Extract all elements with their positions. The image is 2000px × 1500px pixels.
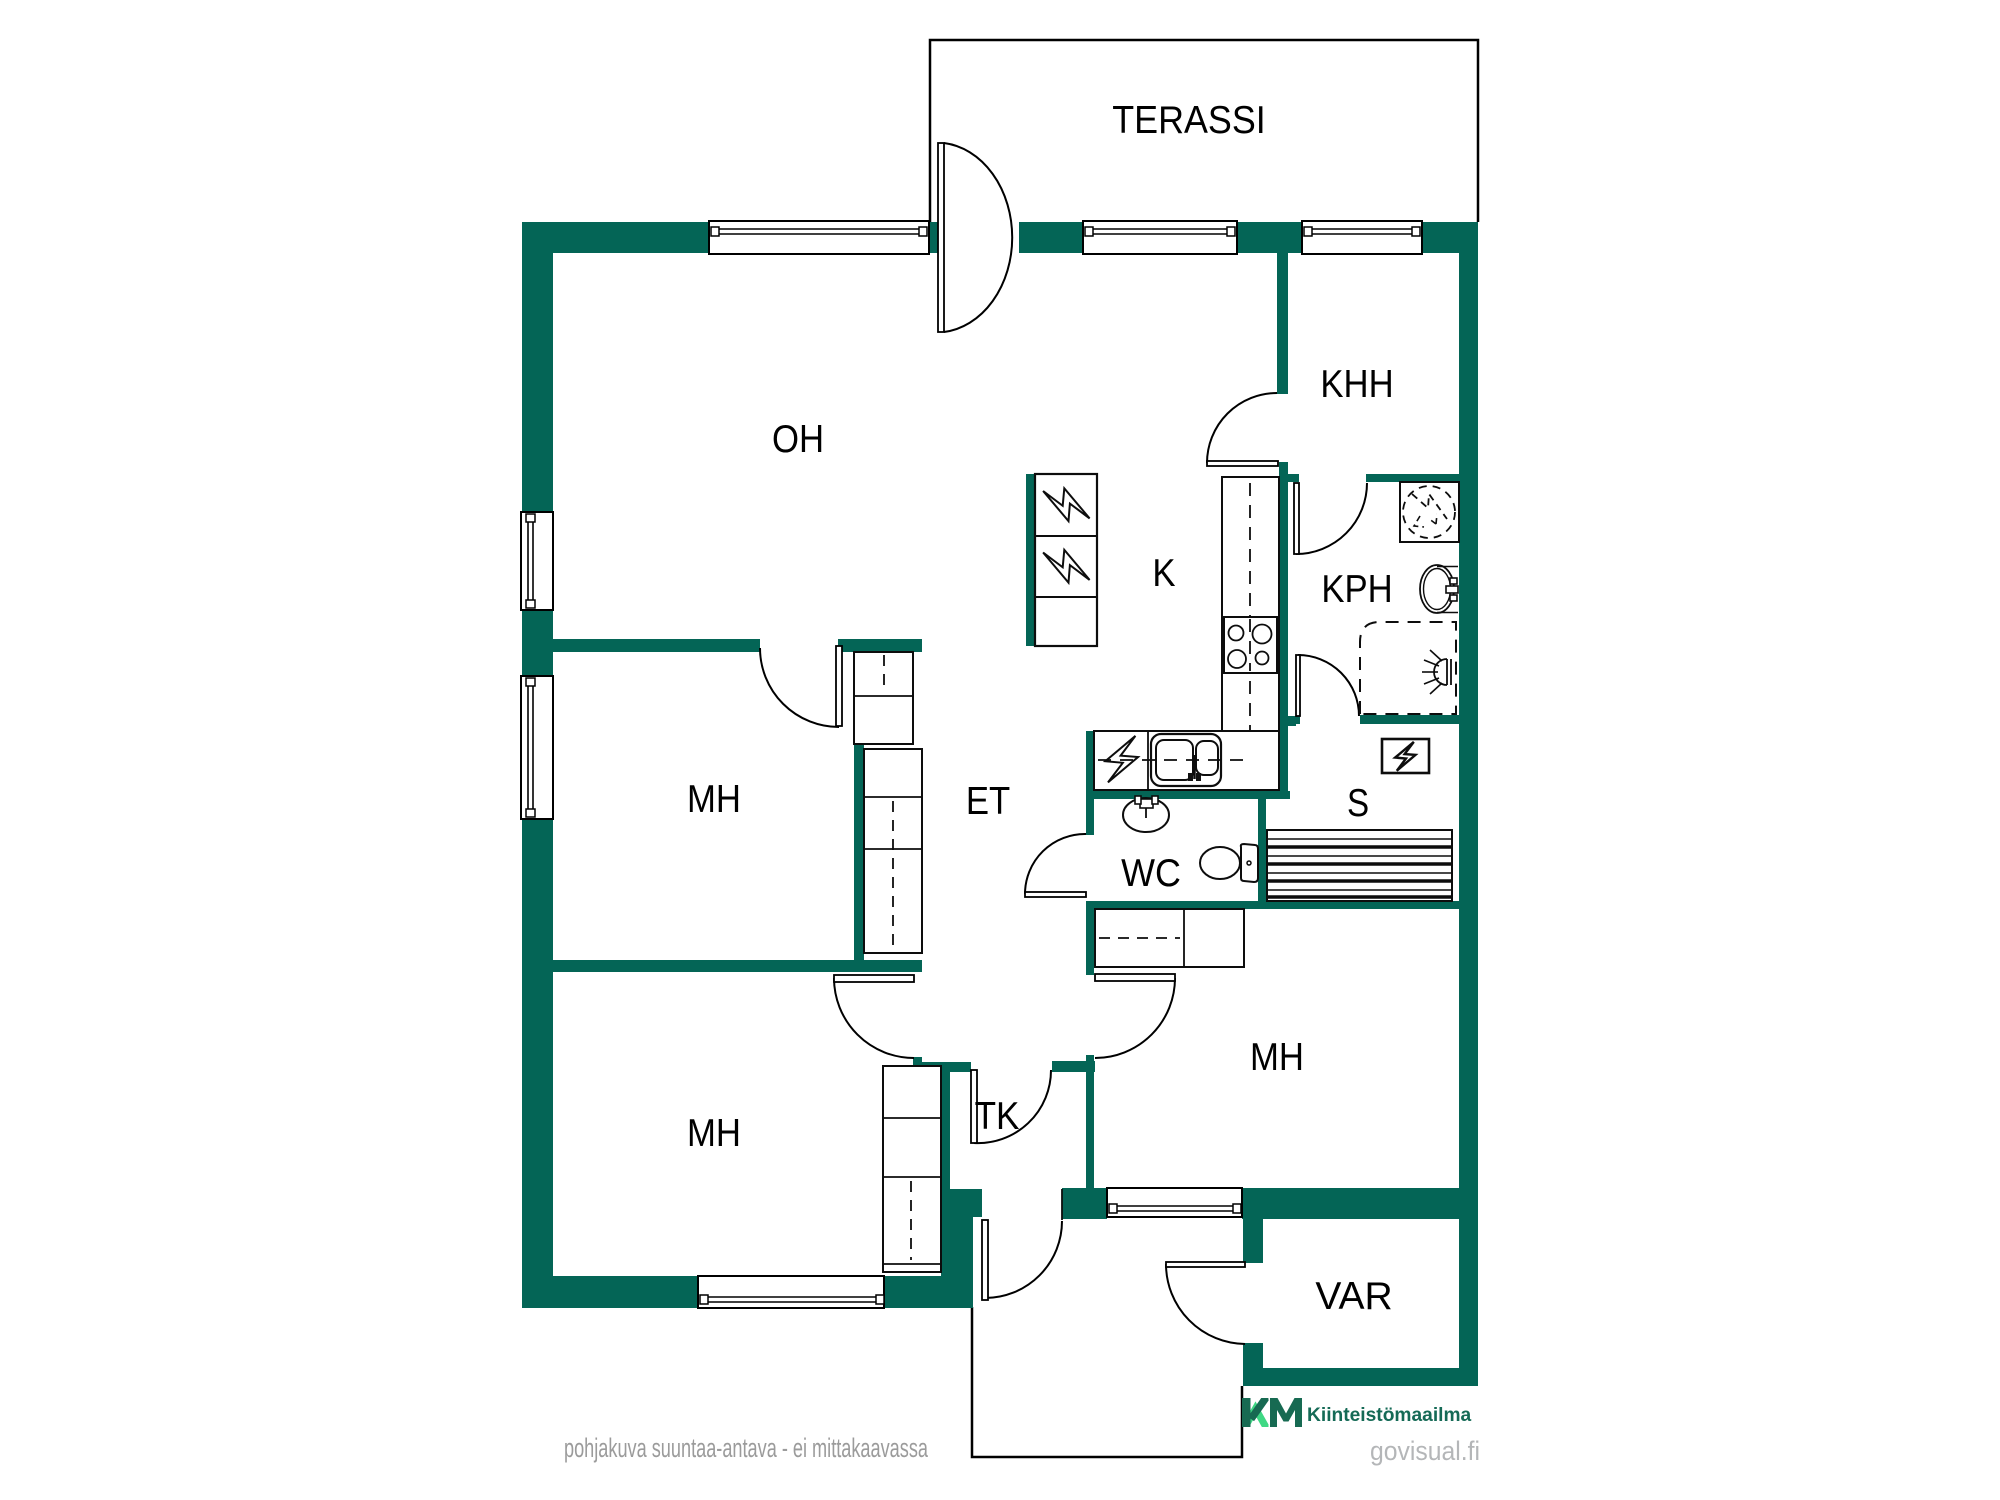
svg-text:S: S — [1347, 780, 1369, 824]
svg-text:TK: TK — [975, 1093, 1020, 1137]
svg-text:OH: OH — [772, 417, 824, 460]
svg-text:WC: WC — [1121, 851, 1181, 895]
svg-text:VAR: VAR — [1315, 1275, 1392, 1318]
svg-text:TERASSI: TERASSI — [1112, 98, 1266, 142]
svg-text:govisual.fi: govisual.fi — [1370, 1436, 1480, 1466]
svg-text:KHH: KHH — [1320, 362, 1393, 405]
svg-text:ET: ET — [966, 779, 1010, 822]
svg-text:KPH: KPH — [1321, 567, 1392, 610]
svg-text:K: K — [1152, 551, 1176, 594]
svg-text:pohjakuva suuntaa-antava - ei: pohjakuva suuntaa-antava - ei mittakaava… — [564, 1433, 929, 1463]
svg-text:MH: MH — [687, 1111, 741, 1154]
svg-text:Kiinteistömaailma: Kiinteistömaailma — [1307, 1405, 1472, 1426]
svg-text:MH: MH — [1250, 1035, 1304, 1078]
svg-text:MH: MH — [687, 777, 741, 820]
